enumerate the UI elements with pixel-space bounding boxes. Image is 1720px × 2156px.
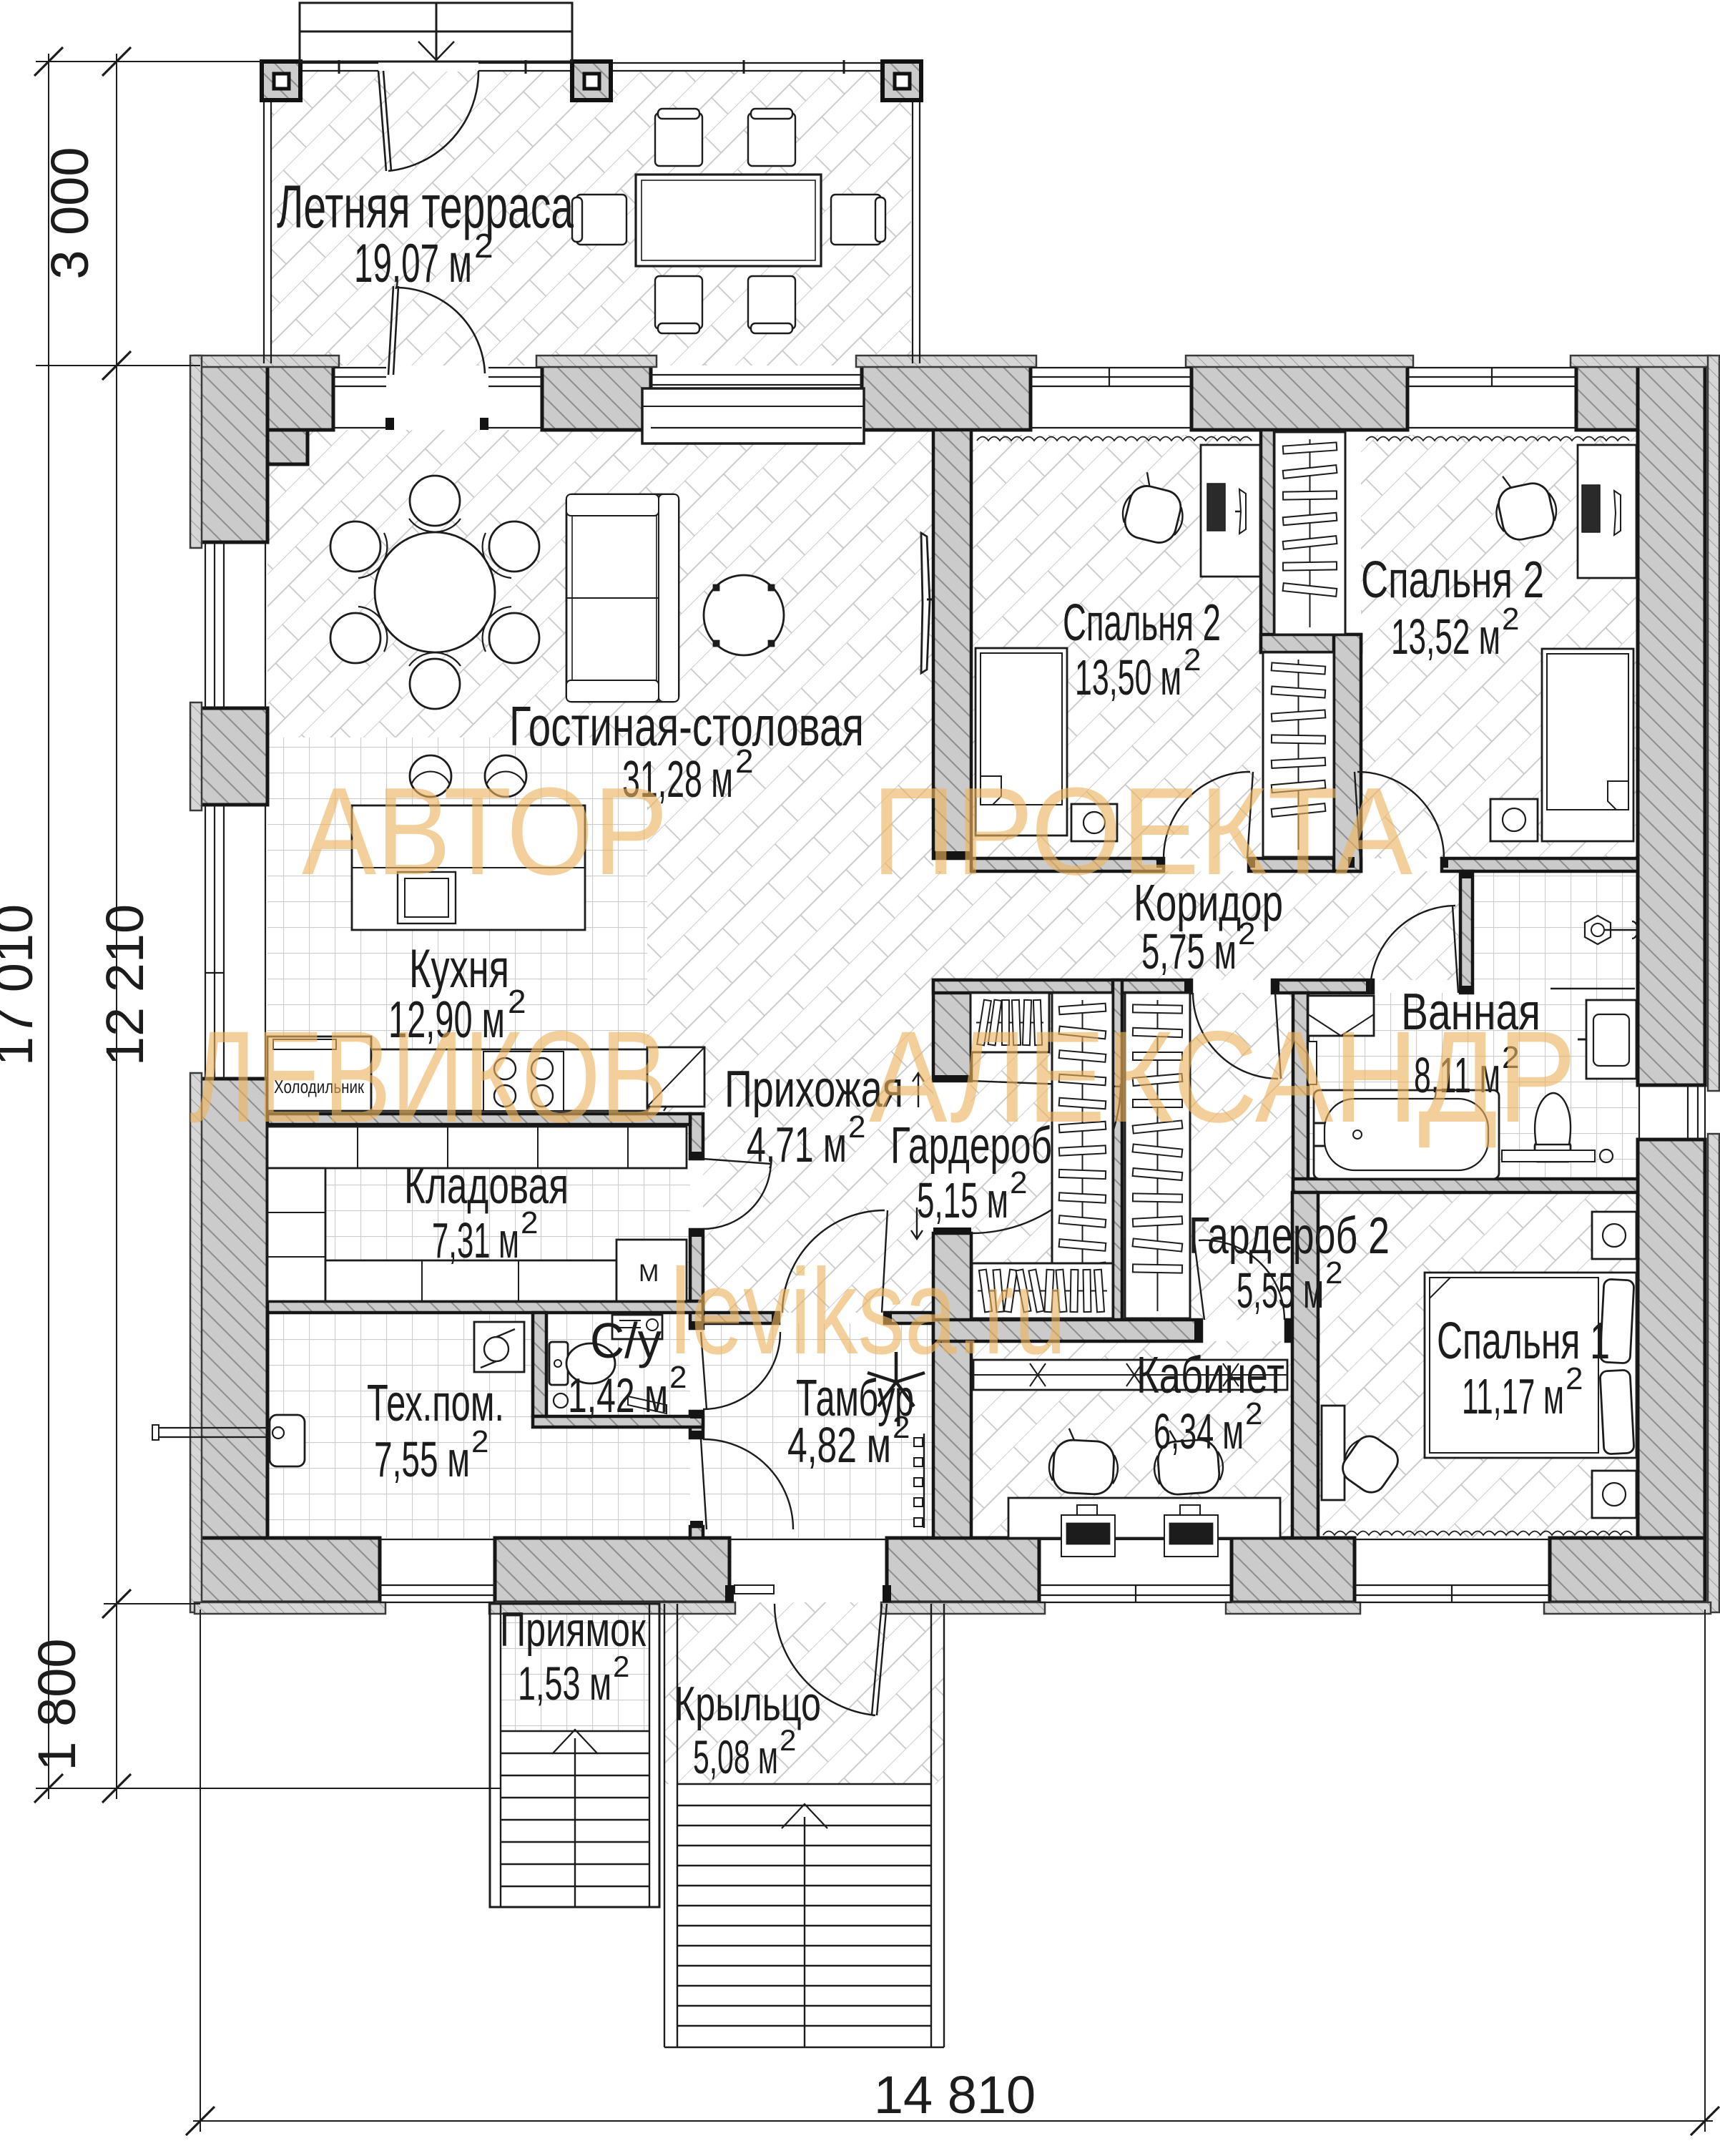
svg-text:6,34 м: 6,34 м: [1154, 1403, 1244, 1459]
svg-text:АЛЕКСАНДР: АЛЕКСАНДР: [869, 1004, 1576, 1150]
svg-text:2: 2: [521, 1205, 538, 1240]
svg-text:1 800: 1 800: [27, 1638, 87, 1770]
svg-text:2: 2: [613, 1650, 629, 1683]
svg-text:14 810: 14 810: [874, 2065, 1036, 2125]
svg-text:12 210: 12 210: [95, 904, 154, 1066]
svg-text:19,07 м: 19,07 м: [354, 233, 472, 294]
svg-text:2: 2: [780, 1723, 796, 1757]
svg-text:2: 2: [474, 227, 493, 265]
svg-text:2: 2: [848, 1109, 865, 1145]
svg-text:Спальня 2: Спальня 2: [1361, 552, 1544, 609]
svg-text:1,53 м: 1,53 м: [518, 1657, 611, 1710]
svg-text:leviksa.ru: leviksa.ru: [670, 1244, 1066, 1380]
svg-text:5,75 м: 5,75 м: [1141, 923, 1237, 979]
svg-text:Гостиная-столовая: Гостиная-столовая: [509, 695, 864, 758]
svg-text:13,50 м: 13,50 м: [1075, 650, 1181, 705]
svg-text:ПРОЕКТА: ПРОЕКТА: [872, 761, 1412, 901]
svg-text:Кабинет: Кабинет: [1136, 1347, 1284, 1404]
svg-text:5,55 м: 5,55 м: [1237, 1263, 1324, 1318]
svg-text:3 000: 3 000: [40, 147, 99, 279]
svg-text:4,82 м: 4,82 м: [787, 1417, 891, 1473]
svg-text:17 010: 17 010: [0, 904, 44, 1066]
svg-text:2: 2: [1566, 1361, 1583, 1396]
svg-text:С/у: С/у: [590, 1313, 662, 1368]
svg-text:5,15 м: 5,15 м: [917, 1172, 1008, 1228]
svg-text:2: 2: [893, 1410, 910, 1445]
svg-text:Кухня: Кухня: [409, 939, 509, 999]
svg-text:7,55 м: 7,55 м: [374, 1431, 470, 1487]
svg-text:2: 2: [1502, 602, 1519, 637]
svg-text:Крыльцо: Крыльцо: [674, 1677, 821, 1731]
svg-text:Спальня 1: Спальня 1: [1437, 1313, 1610, 1370]
svg-text:4,71 м: 4,71 м: [747, 1117, 847, 1172]
svg-text:2: 2: [1184, 642, 1201, 677]
svg-text:2: 2: [1245, 1396, 1262, 1431]
svg-text:7,31 м: 7,31 м: [432, 1212, 519, 1268]
svg-text:Летняя терраса: Летняя терраса: [277, 173, 574, 240]
svg-text:Гардероб 2: Гардероб 2: [1189, 1207, 1390, 1265]
svg-text:2: 2: [1238, 916, 1255, 951]
svg-text:Тех.пом.: Тех.пом.: [367, 1375, 504, 1432]
svg-text:1,42 м: 1,42 м: [568, 1368, 668, 1423]
svg-text:2: 2: [1010, 1165, 1027, 1200]
svg-text:Приямок: Приямок: [500, 1602, 647, 1657]
svg-text:2: 2: [735, 743, 754, 780]
svg-text:2: 2: [471, 1424, 488, 1459]
svg-text:ЛЕВИКОВ: ЛЕВИКОВ: [190, 1004, 668, 1150]
svg-text:11,17 м: 11,17 м: [1462, 1368, 1564, 1424]
svg-text:Кладовая: Кладовая: [404, 1157, 569, 1215]
svg-text:13,52 м: 13,52 м: [1391, 609, 1500, 665]
svg-text:АВТОР: АВТОР: [302, 761, 668, 901]
svg-text:2: 2: [1325, 1255, 1342, 1290]
svg-text:М: М: [639, 1260, 659, 1287]
svg-text:5,08 м: 5,08 м: [693, 1730, 778, 1783]
